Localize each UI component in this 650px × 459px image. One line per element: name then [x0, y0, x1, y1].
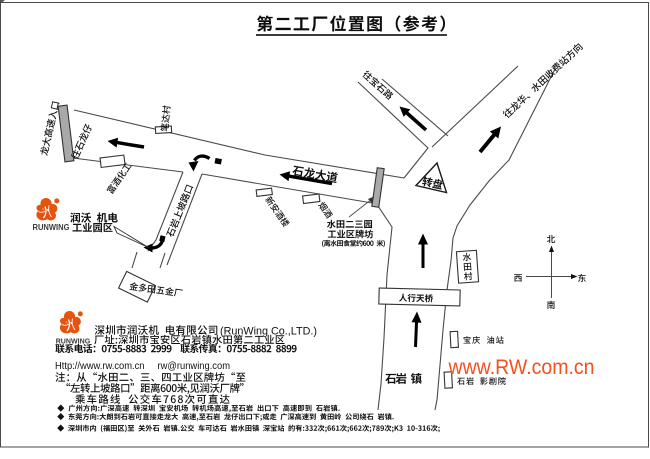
svg-text:RUNWING: RUNWING: [56, 337, 91, 346]
svg-text:Http://www.rw.com.cn rw@ru: Http://www.rw.com.cn rw@runwing.com: [55, 361, 230, 372]
svg-text:RUNWING: RUNWING: [33, 223, 70, 232]
svg-text:www.RW.com.cn: www.RW.com.cn: [448, 355, 595, 379]
